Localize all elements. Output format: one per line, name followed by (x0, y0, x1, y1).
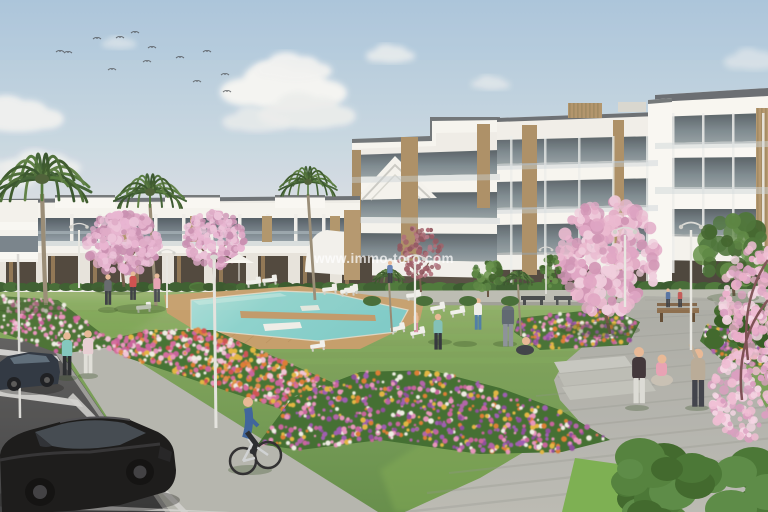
svg-text:www.immo-toro.com: www.immo-toro.com (313, 251, 454, 266)
